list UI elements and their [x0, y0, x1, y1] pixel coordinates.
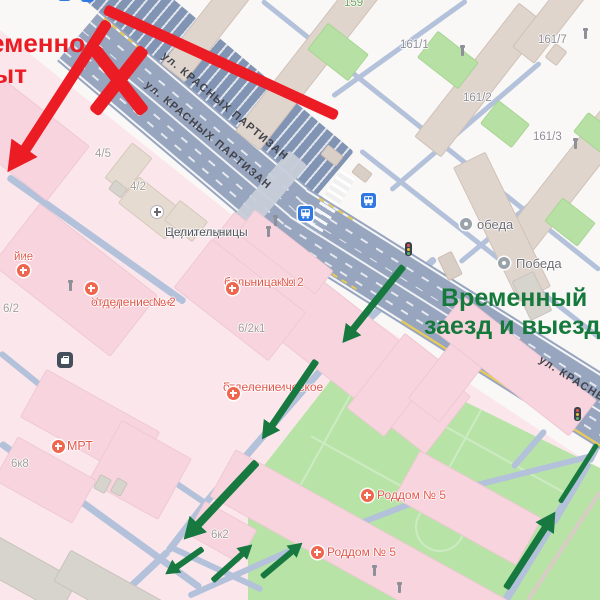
map-canvas[interactable]: ул. КРАСНЫХ ПАРТИЗАНул. КРАСНЫХ ПАРТИЗАН…	[0, 0, 600, 600]
church-icon	[150, 205, 164, 219]
house-number: 4/2	[130, 181, 146, 193]
closed-annotation-line1: еменно	[0, 28, 85, 59]
house-number: 161/3	[533, 131, 562, 143]
house-number: 6к2	[211, 529, 229, 541]
house-number: 161/1	[400, 39, 429, 51]
house-number: 6к8	[11, 458, 29, 470]
street-lamp-icon	[69, 282, 72, 291]
street-lamp-icon	[398, 584, 401, 593]
house-number: 6/2	[3, 303, 19, 315]
traffic-light-icon	[405, 242, 412, 256]
medical-cross-icon[interactable]	[361, 489, 374, 502]
street-lamp-icon	[461, 47, 464, 56]
temporary-access-line2: заезд и выезд	[424, 312, 600, 341]
street-lamp-icon	[267, 228, 270, 237]
house-number: 161/2	[463, 92, 492, 104]
medical-cross-icon[interactable]	[226, 282, 239, 295]
closed-annotation-line2: ыт	[0, 59, 27, 90]
street-lamp-icon	[584, 30, 587, 39]
house-number: 6/2к1	[238, 323, 265, 335]
building	[545, 43, 568, 66]
poi-circle-icon[interactable]	[460, 218, 472, 230]
medical-cross-icon[interactable]	[311, 546, 324, 559]
house-number: 4/5	[95, 148, 111, 160]
bus-stop-icon[interactable]	[361, 193, 376, 208]
medical-cross-icon[interactable]	[52, 440, 65, 453]
street-lamp-icon	[574, 140, 577, 149]
bus-stop-icon[interactable]	[298, 206, 313, 221]
map-marker-icon	[81, 0, 94, 2]
medical-cross-icon[interactable]	[17, 264, 30, 277]
map-marker-icon	[58, 0, 71, 1]
street-lamp-icon	[373, 567, 376, 576]
house-number: 161/7	[538, 34, 567, 46]
house-number: 159	[344, 0, 363, 9]
medical-cross-icon[interactable]	[227, 387, 240, 400]
temporary-access-line1: Временный	[441, 284, 587, 313]
shop-icon	[57, 352, 73, 368]
traffic-light-icon	[574, 407, 581, 421]
medical-cross-icon[interactable]	[85, 282, 98, 295]
poi-circle-icon[interactable]	[498, 257, 510, 269]
street-lamp-icon	[274, 217, 277, 226]
